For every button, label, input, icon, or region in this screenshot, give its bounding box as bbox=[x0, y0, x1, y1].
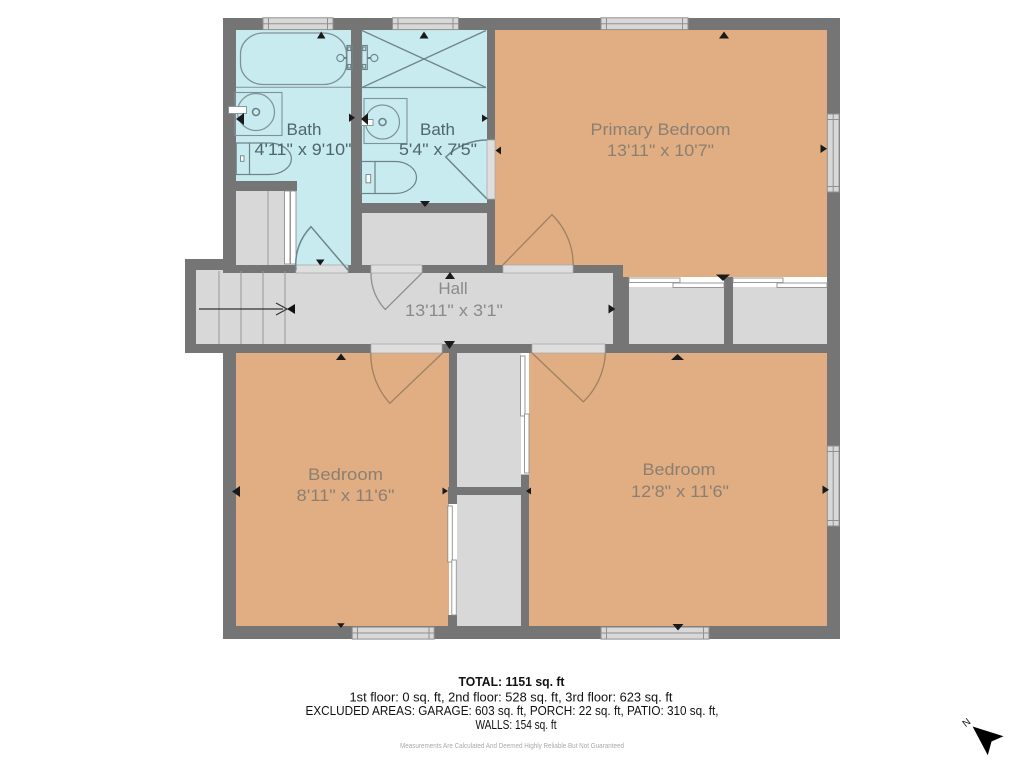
svg-text:Primary Bedroom: Primary Bedroom bbox=[591, 120, 731, 139]
svg-text:Measurements Are Calculated An: Measurements Are Calculated And Deemed H… bbox=[400, 741, 624, 750]
svg-text:8'11" x 11'6": 8'11" x 11'6" bbox=[297, 486, 395, 505]
svg-text:EXCLUDED AREAS: GARAGE: 603 sq: EXCLUDED AREAS: GARAGE: 603 sq. ft, PORC… bbox=[306, 703, 719, 718]
svg-text:Bath: Bath bbox=[420, 120, 455, 139]
svg-text:13'11" x 3'1": 13'11" x 3'1" bbox=[405, 301, 503, 320]
svg-text:12'8" x 11'6": 12'8" x 11'6" bbox=[631, 482, 729, 501]
svg-text:13'11" x 10'7": 13'11" x 10'7" bbox=[607, 141, 714, 160]
svg-text:5'4" x 7'5": 5'4" x 7'5" bbox=[399, 140, 477, 159]
svg-text:Bedroom: Bedroom bbox=[308, 465, 383, 484]
svg-text:4'11" x 9'10": 4'11" x 9'10" bbox=[255, 140, 352, 159]
svg-text:Bedroom: Bedroom bbox=[643, 460, 716, 479]
svg-text:Hall: Hall bbox=[438, 279, 467, 298]
svg-text:TOTAL: 1151 sq. ft: TOTAL: 1151 sq. ft bbox=[459, 674, 566, 689]
svg-text:WALLS: 154 sq. ft: WALLS: 154 sq. ft bbox=[476, 717, 557, 732]
svg-text:Bath: Bath bbox=[287, 120, 322, 139]
